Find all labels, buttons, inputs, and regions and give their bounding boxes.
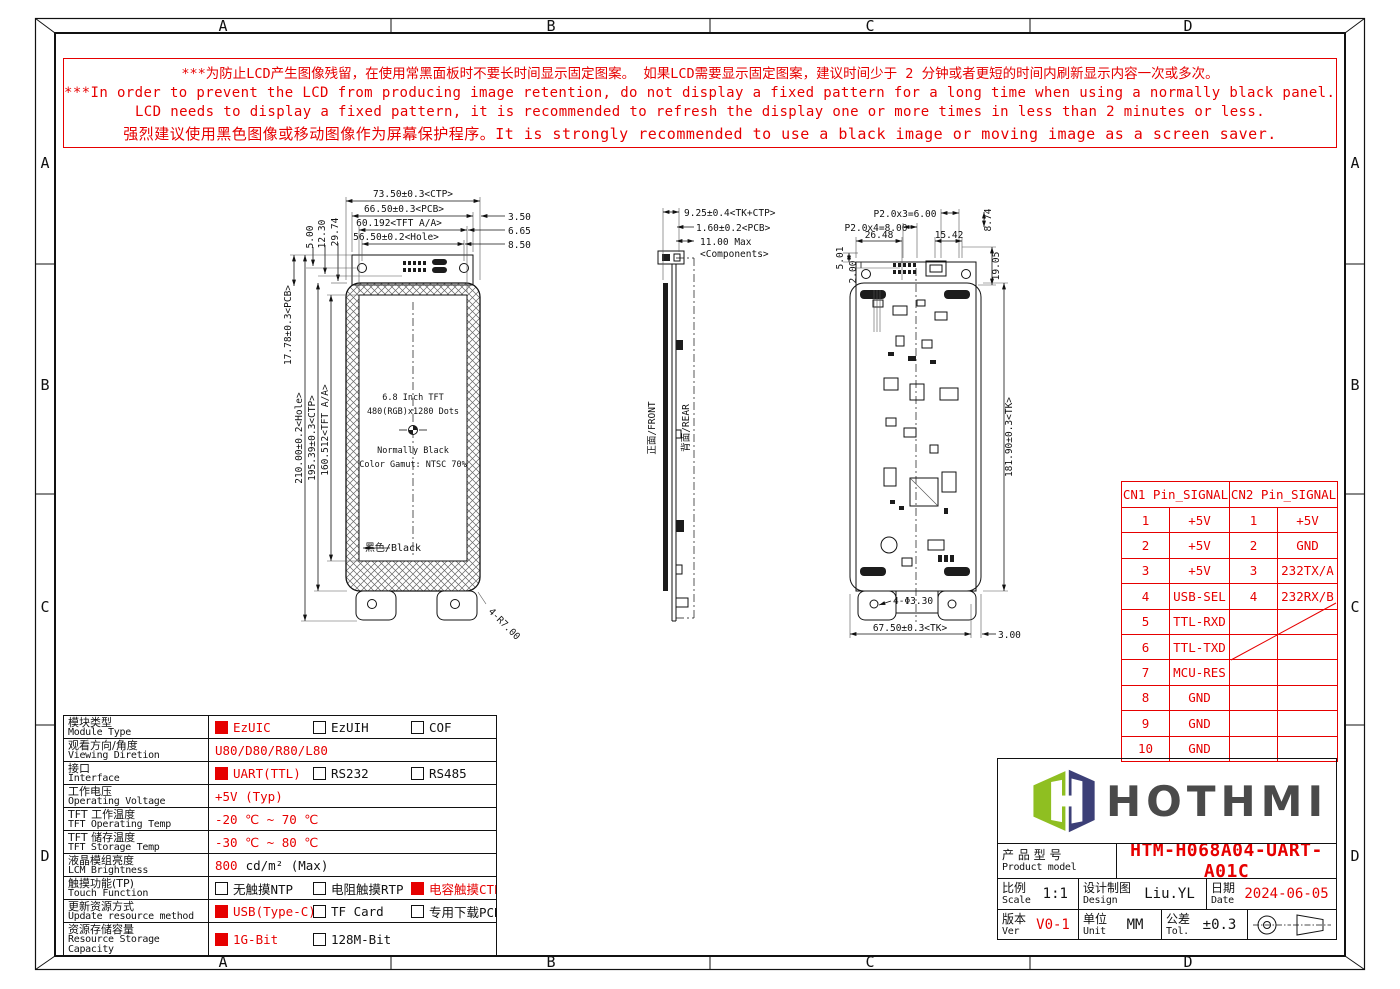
zone-letter-right-a: A (1350, 154, 1359, 172)
dim-v2: 12.30 (317, 219, 328, 248)
hothmi-logo-icon (1026, 767, 1098, 835)
pin-signal-table: CN1 Pin_SIGNAL CN2 Pin_SIGNAL 1+5V1+5V 2… (1121, 481, 1338, 762)
checkbox-icon (313, 767, 326, 780)
option-usb-typec: USB(Type-C) (215, 904, 313, 919)
side-view: 9.25±0.4<TK+CTP> 1.60±0.2<PCB> 11.00 Max… (647, 208, 776, 621)
checkbox-icon (215, 882, 228, 895)
spec-row: 液晶模组亮度LCM Brightness 800cd/m² (Max) (64, 854, 497, 877)
pin-row: 2+5V2GND (1122, 533, 1338, 558)
zone-letter-right-d: D (1350, 847, 1359, 865)
fpc-pads (403, 259, 447, 273)
checkbox-checked-icon (411, 882, 424, 895)
spec-row: 触摸功能(TP)Touch Function 无触摸NTP 电阻触摸RTP 电容… (64, 877, 497, 900)
pin-row: 7MCU-RES (1122, 660, 1338, 685)
checkbox-icon (411, 721, 424, 734)
screen-size-label: 6.8 Inch TFT (382, 393, 443, 403)
date-label-en: Date (1211, 895, 1235, 906)
rear-view: P2.0x3=6.00 P2.0x4=8.00 26.48 15.42 8.74… (835, 208, 1021, 641)
spec-label-en: Module Type (68, 728, 208, 738)
dim-pcb-width: 66.50±0.3<PCB> (364, 204, 444, 215)
checkbox-checked-icon (215, 905, 228, 918)
dim-ctp-width: 73.50±0.3<CTP> (373, 189, 453, 200)
dim-tk-height: 181.90±0.3<TK> (1004, 397, 1015, 477)
viewing-direction-value: U80/D80/R80/L80 (215, 743, 328, 758)
spec-row: 接口Interface UART(TTL) RS232 RS485 (64, 762, 497, 785)
tolerance-value: ±0.3 (1192, 917, 1247, 933)
unit-label-en: Unit (1083, 926, 1107, 937)
option-ntp: 无触摸NTP (215, 879, 313, 898)
dim-hole-width: 56.50±0.2<Hole> (353, 232, 439, 243)
zone-letter-right-c: C (1350, 598, 1359, 616)
checkbox-checked-icon (215, 721, 228, 734)
brand-logo: HOTHMI (998, 759, 1336, 843)
dim-8-74: 8.74 (983, 208, 994, 231)
rear-side-label: 背面/REAR (680, 404, 692, 452)
tolerance-label-cn: 公差 (1166, 913, 1190, 926)
dim-hole-height: 210.00±0.2<Hole> (294, 392, 305, 484)
scale-value: 1:1 (1033, 886, 1078, 902)
product-model-label-cn: 产 品 型 号 (1002, 849, 1076, 862)
dim-5-01: 5.01 (835, 246, 846, 269)
version-label-cn: 版本 (1002, 913, 1026, 926)
dim-p2x3: P2.0x3=6.00 (874, 209, 937, 220)
display-window (359, 295, 467, 561)
checkbox-icon (411, 767, 424, 780)
date-value: 2024-06-05 (1237, 886, 1336, 902)
projection-symbol-icon (1251, 912, 1333, 938)
zone-letter-left-b: B (40, 376, 49, 394)
image-retention-warning: ***为防止LCD产生图像残留，在使用常黑面板时不要长时间显示固定图案。 如果L… (63, 58, 1337, 148)
usb-connector (926, 261, 946, 276)
dim-aa-width: 60.192<TFT A/A> (356, 218, 442, 229)
zone-letter-left-d: D (40, 847, 49, 865)
warning-line-cn2: 强烈建议使用黑色图像或移动图像作为屏幕保护程序。It is strongly r… (64, 123, 1336, 144)
design-label-en: Design (1083, 895, 1131, 906)
brightness-value: 800 (215, 858, 238, 873)
spec-row: 观看方向/角度Viewing Diretion U80/D80/R80/L80 (64, 739, 497, 762)
title-block: HOTHMI 产 品 型 号Product model HTM-H068A04-… (997, 758, 1337, 940)
designer-name: Liu.YL (1133, 886, 1206, 902)
storage-temp-value: -30 ℃ ~ 80 ℃ (215, 835, 318, 850)
operating-temp-value: -20 ℃ ~ 70 ℃ (215, 812, 318, 827)
scale-label-en: Scale (1002, 895, 1031, 906)
spec-label-en: Interface (68, 774, 208, 784)
screen-resolution-label: 480(RGB)x1280 Dots (367, 407, 459, 417)
spec-row: 更新资源方式Update resource method USB(Type-C)… (64, 900, 497, 923)
spec-label-en: Operating Voltage (68, 797, 208, 807)
operating-voltage-value: +5V (Typ) (215, 789, 283, 804)
product-model-label-en: Product model (1002, 862, 1076, 873)
front-side-label: 正面/FRONT (647, 401, 658, 455)
brand-name: HOTHMI (1106, 777, 1328, 826)
pin-row: 5TTL-RXD (1122, 609, 1338, 634)
product-model-value: HTM-H068A04-UART-A01C (1117, 844, 1336, 878)
dim-pcb-thickness: 1.60±0.2<PCB> (696, 223, 771, 234)
checkbox-icon (313, 882, 326, 895)
dim-components-max: 11.00 Max (700, 237, 752, 248)
zone-letter-top-b: B (546, 17, 555, 35)
dim-components-note: <Components> (700, 249, 769, 260)
dim-offset-3: 8.50 (508, 240, 531, 251)
dim-ctp-height: 195.39±0.3<CTP> (307, 395, 318, 481)
pcb-components (873, 290, 958, 566)
brightness-unit: cd/m² (Max) (246, 858, 329, 873)
option-rs232: RS232 (313, 766, 411, 781)
zone-letter-top-d: D (1183, 17, 1192, 35)
option-download-pcb: 专用下载PCB (411, 902, 497, 921)
option-ezuih: EzUIH (313, 720, 411, 735)
date-label-cn: 日期 (1211, 882, 1235, 895)
option-rs485: RS485 (411, 766, 497, 781)
checkbox-checked-icon (215, 933, 228, 946)
zone-letter-left-a: A (40, 154, 49, 172)
tolerance-label-en: Tol. (1166, 926, 1190, 937)
dim-26-48: 26.48 (865, 230, 894, 241)
cn1-header: CN1 Pin_SIGNAL (1122, 482, 1230, 508)
zone-letter-top-c: C (865, 17, 874, 35)
scale-label-cn: 比例 (1002, 882, 1031, 895)
dim-tk-ctp-thickness: 9.25±0.4<TK+CTP> (684, 208, 776, 219)
zone-letter-left-c: C (40, 598, 49, 616)
spec-label-en: Update resource method (68, 912, 208, 922)
spec-label-en: Viewing Diretion (68, 751, 208, 761)
warning-line-en1: ***In order to prevent the LCD from prod… (64, 85, 1336, 101)
option-tf-card: TF Card (313, 904, 411, 919)
spec-label-en: TFT Storage Temp (68, 843, 208, 853)
screen-gamut-label: Color Gamut: NTSC 70% (359, 460, 466, 470)
dim-v1: 5.00 (305, 225, 316, 248)
spec-row: TFT 储存温度TFT Storage Temp -30 ℃ ~ 80 ℃ (64, 831, 497, 854)
checkbox-icon (411, 905, 424, 918)
zone-letter-bottom-c: C (865, 953, 874, 971)
pin-row: 8GND (1122, 685, 1338, 710)
dim-offset-1: 3.50 (508, 212, 531, 223)
pin-row: 3+5V3232TX/A (1122, 558, 1338, 583)
checkbox-icon (313, 933, 326, 946)
drawing-sheet: A B C D A B C D A B C D A B C D 6.8 Inch… (0, 0, 1400, 989)
spec-label-en: TFT Operating Temp (68, 820, 208, 830)
dim-3-00: 3.00 (998, 630, 1021, 641)
zone-letter-bottom-b: B (546, 953, 555, 971)
dim-p2x4: P2.0x4=8.00 (845, 223, 908, 234)
spec-label-en: Resource Storage Capacity (68, 935, 208, 955)
pin-row: 1+5V1+5V (1122, 508, 1338, 533)
front-view: 6.8 Inch TFT 480(RGB)x1280 Dots Normally… (283, 189, 531, 643)
unit-value: MM (1109, 917, 1161, 933)
spec-row: 工作电压Operating Voltage +5V (Typ) (64, 785, 497, 808)
warning-line-en2: LCD needs to display a fixed pattern, it… (64, 104, 1336, 120)
design-label-cn: 设计制图 (1083, 882, 1131, 895)
checkbox-checked-icon (215, 767, 228, 780)
version-label-en: Ver (1002, 926, 1026, 937)
dim-aa-height: 160.512<TFT A/A> (320, 384, 331, 476)
checkbox-icon (313, 721, 326, 734)
checkbox-icon (313, 905, 326, 918)
corner-radius-label: 4-R7.00 (486, 606, 522, 642)
option-rtp: 电阻触摸RTP (313, 879, 411, 898)
black-color-label: 黑色/Black (365, 541, 421, 554)
unit-label-cn: 单位 (1083, 913, 1107, 926)
option-1g-bit: 1G-Bit (215, 932, 313, 947)
pin-row: 9GND (1122, 711, 1338, 736)
spec-row: TFT 工作温度TFT Operating Temp -20 ℃ ~ 70 ℃ (64, 808, 497, 831)
ctp-glass (346, 283, 480, 591)
dim-15-42: 15.42 (935, 230, 964, 241)
pin-row: 6TTL-TXD (1122, 634, 1338, 659)
zone-letter-top-a: A (218, 17, 227, 35)
version-value: V0-1 (1028, 917, 1078, 933)
dim-offset-2: 6.65 (508, 226, 531, 237)
dim-pcb-top-height: 17.78±0.3<PCB> (283, 285, 294, 365)
pin-row: 4USB-SEL4232RX/B (1122, 584, 1338, 609)
option-ezuic: EzUIC (215, 720, 313, 735)
spec-label-en: LCM Brightness (68, 866, 208, 876)
option-128m-bit: 128M-Bit (313, 932, 411, 947)
dim-tk-width: 67.50±0.3<TK> (873, 623, 948, 634)
pin-table-header: CN1 Pin_SIGNAL CN2 Pin_SIGNAL (1122, 482, 1338, 508)
zone-letter-right-b: B (1350, 376, 1359, 394)
option-uart-ttl: UART(TTL) (215, 766, 313, 781)
dim-19-05: 19.05 (991, 252, 1002, 281)
spec-row: 资源存储容量Resource Storage Capacity 1G-Bit 1… (64, 923, 497, 956)
option-cof: COF (411, 720, 497, 735)
dim-2-00: 2.00 (848, 260, 859, 283)
option-ctp: 电容触摸CTP (411, 879, 497, 898)
dim-v3: 29.74 (330, 217, 341, 246)
warning-line-cn: ***为防止LCD产生图像残留，在使用常黑面板时不要长时间显示固定图案。 如果L… (64, 62, 1336, 82)
cn2-header: CN2 Pin_SIGNAL (1230, 482, 1338, 508)
spec-table: 模块类型Module Type EzUIC EzUIH COF 观看方向/角度V… (63, 715, 497, 956)
spec-label-en: Touch Function (68, 889, 208, 899)
rear-fpc-pads (893, 263, 916, 274)
dim-mounting-holes: 4-Φ3.30 (893, 596, 933, 607)
zone-letter-bottom-d: D (1183, 953, 1192, 971)
center-mark-icon (409, 426, 418, 435)
screen-mode-label: Normally Black (377, 446, 449, 456)
spec-row: 模块类型Module Type EzUIC EzUIH COF (64, 716, 497, 739)
